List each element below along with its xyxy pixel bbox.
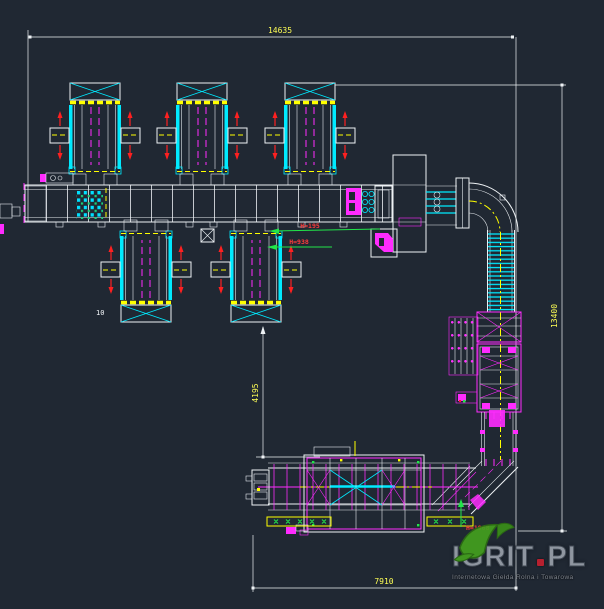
overhead-conveyor [0, 173, 393, 234]
cad-drawing: 14635 13400 7910 4195 [0, 0, 604, 609]
footer-pad-left [267, 517, 331, 526]
dim-left-vertical: 4195 [251, 383, 260, 402]
cad-drawing-canvas: 14635 13400 7910 4195 [0, 0, 604, 609]
right-dimension: 13400 [550, 84, 564, 533]
workstation-top-3 [265, 83, 355, 185]
watermark-tld-text: PL [547, 543, 586, 572]
bottom-machine: H=1968 [246, 441, 490, 535]
watermark-leaf-icon [449, 516, 516, 574]
workstation-top-2 [157, 83, 247, 185]
count-label: 10 [96, 309, 104, 317]
boxed-x-symbol [201, 229, 214, 242]
watermark-red-dot-icon [537, 559, 544, 566]
top-dimension: 14635 [29, 26, 515, 39]
h195-label: H=195 [300, 222, 320, 230]
descent-machine [449, 312, 521, 466]
left-vertical-dimension: 4195 [251, 326, 320, 459]
leader-annotations: H=195 H=938 [267, 222, 380, 250]
dim-right-height: 13400 [550, 304, 559, 328]
dim-bottom-width: 7910 [374, 577, 393, 586]
workstation-top-1 [50, 83, 140, 185]
watermark-subtitle: Internetowa Giełda Rolna i Towarowa [452, 574, 604, 581]
watermark-logo: IGRITPL Internetowa Giełda Rolna i Towar… [452, 543, 604, 581]
h938-label: H=938 [289, 238, 309, 246]
workstation-bottom-1 [101, 220, 191, 322]
dim-top-width: 14635 [268, 26, 292, 35]
workstation-bottom-2 [211, 220, 301, 322]
corner-bend-top [469, 183, 518, 232]
